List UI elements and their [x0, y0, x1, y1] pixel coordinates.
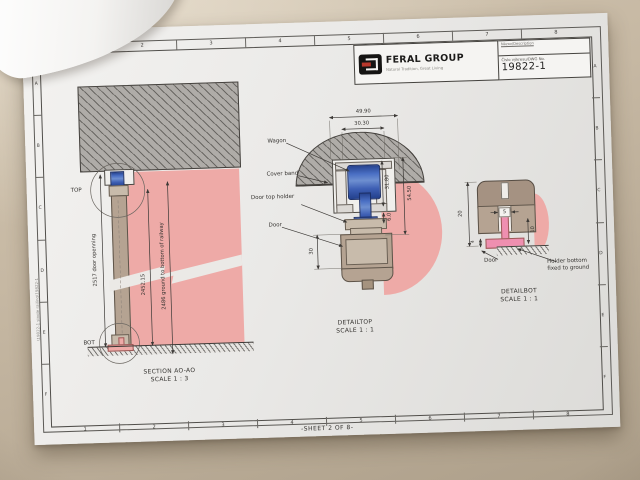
detailtop-label-door: Door	[258, 222, 282, 229]
section-bot-callout-label: BOT	[83, 340, 95, 347]
detailtop-dim-width-outer: 49.90	[343, 108, 383, 115]
detailtop-dim-gap: 6.0	[386, 197, 393, 237]
detailtop-label-wagon: Wagon	[250, 138, 286, 146]
drawing-sheet: 1 2 3 4 5 6 7 8 1 2 3 4 5 6 7 8 A B C D …	[22, 13, 621, 445]
detailtop-dim-door-thickness: 30	[308, 231, 315, 271]
detailbot-label-holder: Holder bottom fixed to ground	[547, 257, 605, 272]
detailbot-dim-side: 10	[529, 209, 536, 249]
detailbot-label-holder-line2: fixed to ground	[547, 264, 589, 271]
photo-scene: 1 2 3 4 5 6 7 8 1 2 3 4 5 6 7 8 A B C D …	[0, 0, 640, 480]
section-top-callout-label: TOP	[71, 187, 82, 194]
detailbot-dim-height: 20	[457, 194, 464, 234]
detailbot-label-door: Door	[484, 257, 497, 264]
detailtop-dim-width-inner: 30.30	[342, 120, 382, 127]
